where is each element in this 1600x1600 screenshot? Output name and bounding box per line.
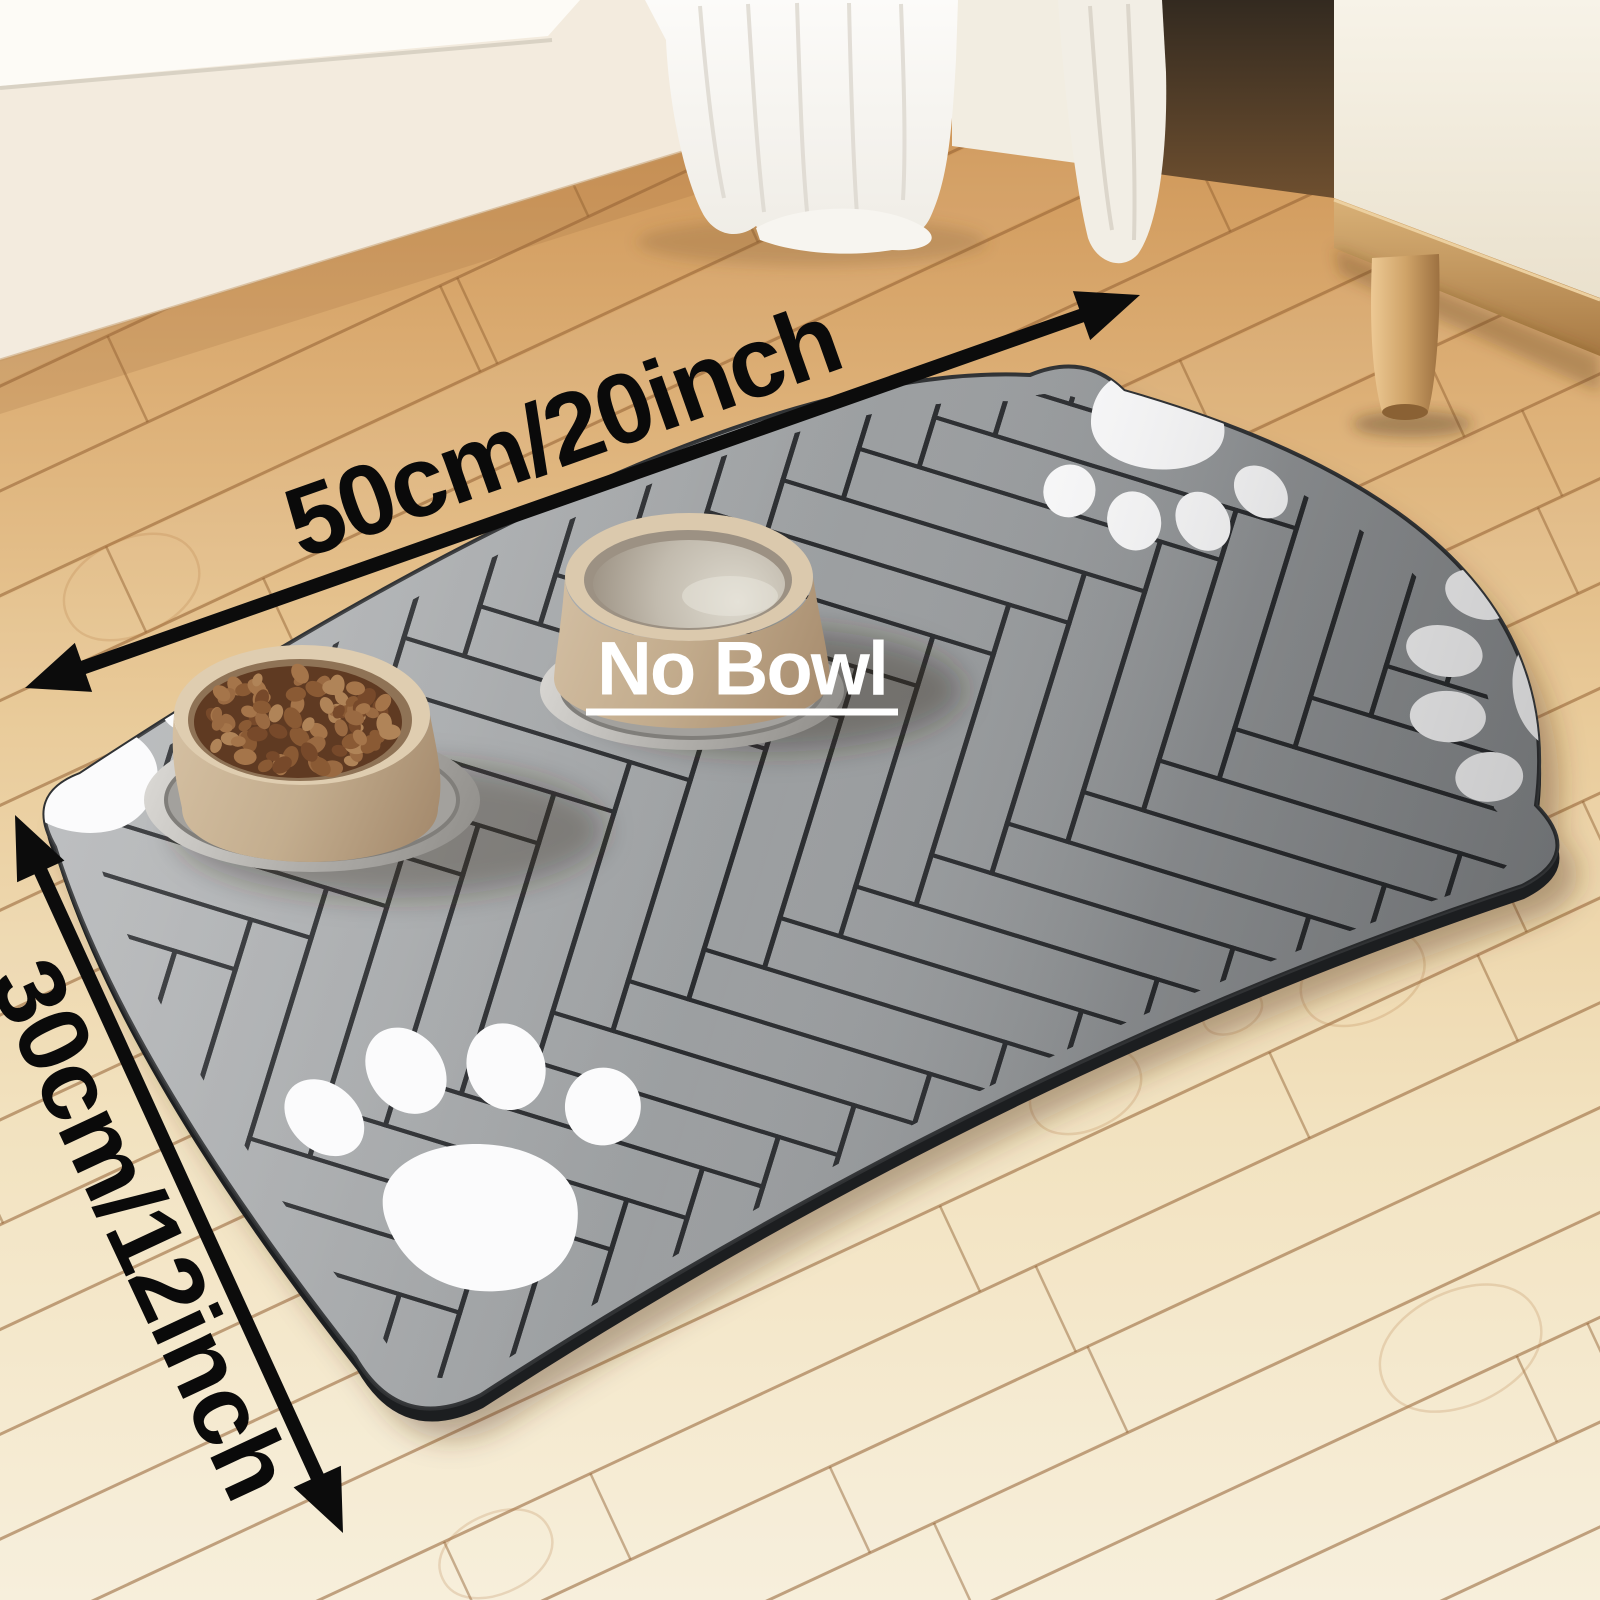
no-bowl-label: No Bowl: [597, 627, 887, 712]
product-photo-scene: 50cm/20inch 30cm/12inch No Bowl: [0, 0, 1600, 1600]
cabinet-leg: [1371, 254, 1439, 412]
